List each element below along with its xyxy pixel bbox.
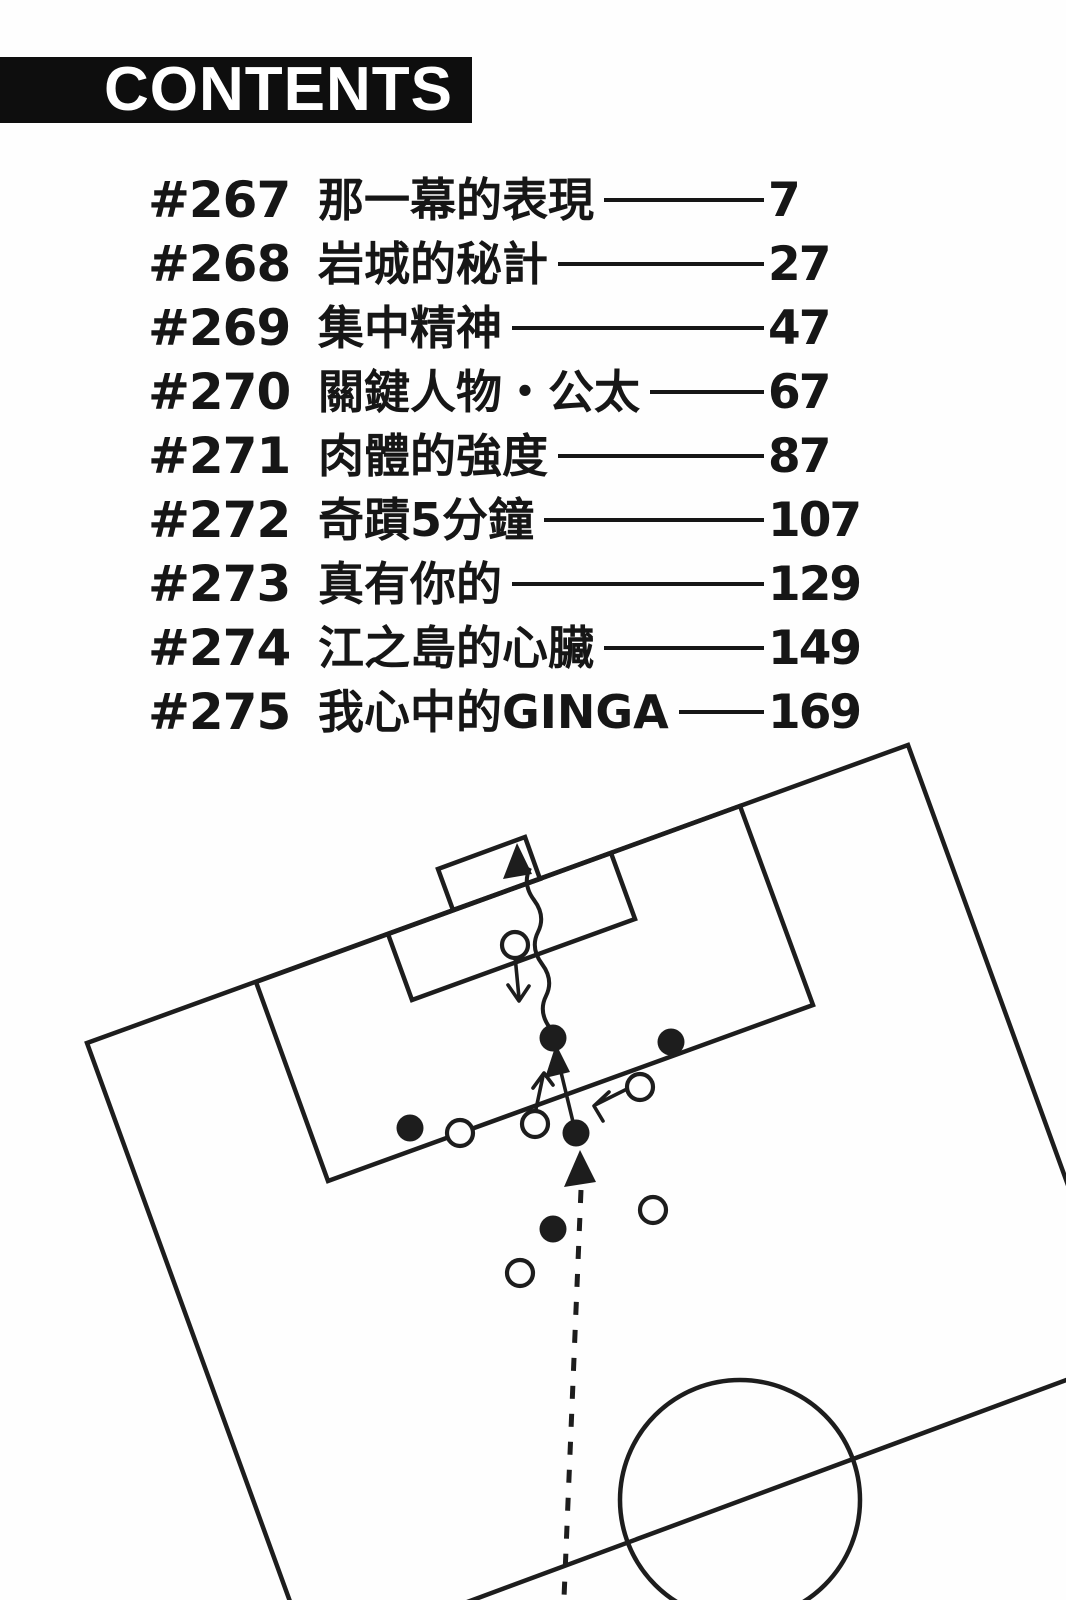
chapter-title: 關鍵人物・公太 — [318, 369, 640, 415]
leader-line — [558, 262, 764, 266]
chapter-number: #267 — [148, 175, 318, 225]
toc-entry: #268 岩城的秘計 27 — [148, 232, 848, 296]
center-circle — [620, 1380, 860, 1600]
toc-entry: #267 那一幕的表現 7 — [148, 168, 848, 232]
page-number: 7 — [768, 177, 848, 224]
leader-line — [679, 710, 764, 714]
defender-marker — [447, 1120, 473, 1146]
defender-arrow-line — [597, 1089, 627, 1104]
leader-line — [544, 518, 764, 522]
toc-list: #267 那一幕的表現 7 #268 岩城的秘計 27 #269 集中精神 47… — [148, 168, 848, 744]
attacker-marker — [397, 1115, 424, 1142]
chapter-number: #274 — [148, 623, 318, 673]
toc-entry: #274 江之島的心臟 149 — [148, 616, 848, 680]
goalkeeper-marker — [502, 932, 528, 958]
attacker-marker — [563, 1120, 590, 1147]
toc-entry: #273 真有你的 129 — [148, 552, 848, 616]
defender-marker — [507, 1260, 533, 1286]
page-number: 149 — [768, 625, 848, 672]
leader-line — [512, 326, 764, 330]
chapter-title: 岩城的秘計 — [318, 241, 548, 287]
toc-entry: #270 關鍵人物・公太 67 — [148, 360, 848, 424]
chapter-title: 集中精神 — [318, 305, 502, 351]
chapter-title: 那一幕的表現 — [318, 177, 594, 223]
leader-line — [650, 390, 764, 394]
chapter-title: 肉體的強度 — [318, 433, 548, 479]
page-number: 169 — [768, 689, 848, 736]
toc-entry: #271 肉體的強度 87 — [148, 424, 848, 488]
chapter-number: #275 — [148, 687, 318, 737]
toc-entry: #275 我心中的GINGA 169 — [148, 680, 848, 744]
page-number: 47 — [768, 305, 848, 352]
toc-entry: #272 奇蹟5分鐘 107 — [148, 488, 848, 552]
page-number: 129 — [768, 561, 848, 608]
shot-squiggle-line — [527, 868, 550, 1028]
chapter-number: #270 — [148, 367, 318, 417]
chapter-number: #268 — [148, 239, 318, 289]
leader-line — [558, 454, 764, 458]
leader-line — [512, 582, 764, 586]
page-number: 87 — [768, 433, 848, 480]
chapter-title: 江之島的心臟 — [318, 625, 594, 671]
pass-dashed-line — [564, 1190, 581, 1598]
page-number: 27 — [768, 241, 848, 288]
chapter-title: 奇蹟5分鐘 — [318, 497, 534, 543]
pass-arrowhead — [564, 1150, 596, 1187]
manga-contents-page: CONTENTS #267 那一幕的表現 7 #268 岩城的秘計 27 #26… — [0, 0, 1066, 1600]
chapter-number: #271 — [148, 431, 318, 481]
chapter-number: #269 — [148, 303, 318, 353]
chapter-number: #273 — [148, 559, 318, 609]
defender-marker — [640, 1197, 666, 1223]
page-number: 67 — [768, 369, 848, 416]
page-number: 107 — [768, 497, 848, 544]
defender-arrowhead — [594, 1092, 609, 1121]
leader-line — [604, 646, 764, 650]
attacker-marker — [658, 1029, 685, 1056]
defender-marker — [627, 1074, 653, 1100]
toc-entry: #269 集中精神 47 — [148, 296, 848, 360]
chapter-title: 我心中的GINGA — [318, 689, 669, 735]
attacker-marker — [540, 1025, 567, 1052]
chapter-number: #272 — [148, 495, 318, 545]
defender-marker — [522, 1111, 548, 1137]
attacker-marker — [540, 1216, 567, 1243]
leader-line — [604, 198, 764, 202]
chapter-title: 真有你的 — [318, 561, 502, 607]
